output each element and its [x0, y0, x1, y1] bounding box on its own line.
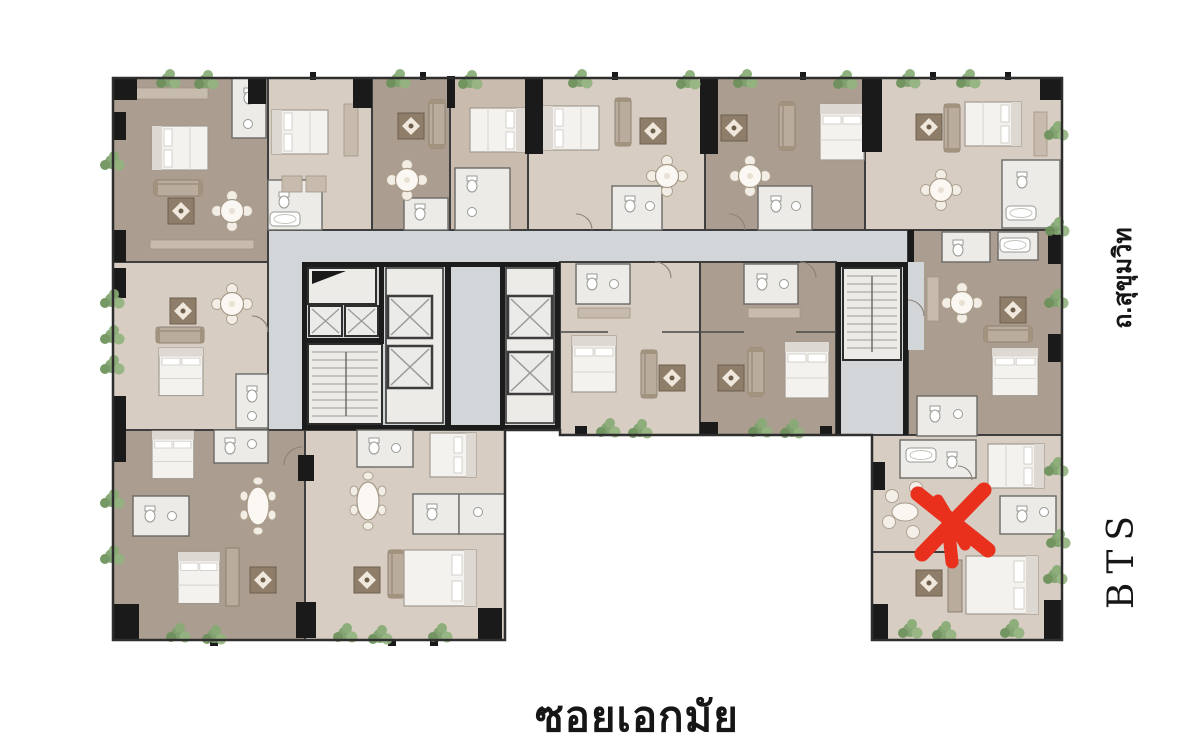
bench: [226, 548, 239, 606]
toilet-icon: [145, 506, 155, 522]
toilet-icon: [625, 196, 635, 212]
toilet-icon: [771, 196, 781, 212]
elevator-icon: [388, 296, 432, 338]
coffee-table-icon: [916, 114, 942, 140]
toilet-icon: [1017, 506, 1027, 522]
plant-icon: [833, 70, 858, 90]
sink-icon: [244, 120, 253, 129]
sink-icon: [610, 280, 619, 289]
bed-icon: [992, 348, 1038, 396]
bed-icon: [272, 110, 328, 154]
street-label-sukhumvit: ถ.สุขุมวิท: [1109, 178, 1137, 378]
bed-icon: [152, 431, 194, 479]
sofa-icon: [779, 102, 795, 150]
coffee-table-icon: [170, 298, 196, 324]
bed-icon: [159, 348, 203, 396]
bed-icon: [543, 106, 599, 150]
coffee-table-icon: [354, 567, 380, 593]
toilet-icon: [427, 504, 437, 520]
bed-icon: [966, 556, 1038, 614]
toilet-icon: [953, 240, 963, 256]
bed-icon: [785, 342, 829, 398]
coffee-table-icon: [168, 198, 194, 224]
bathtub-icon: [1006, 206, 1036, 220]
toilet-icon: [930, 406, 940, 422]
sofa-icon: [748, 348, 764, 396]
elevator-icon: [508, 296, 552, 338]
core-stairwell: [302, 262, 560, 430]
bed-icon: [965, 102, 1021, 146]
toilet-icon: [415, 204, 425, 220]
plant-icon: [676, 70, 701, 90]
toilet-icon: [279, 192, 289, 208]
toilet-icon: [247, 386, 257, 402]
sink-icon: [646, 202, 655, 211]
toilet-icon: [467, 176, 477, 192]
coffee-table-icon: [718, 365, 744, 391]
bed-icon: [430, 433, 476, 477]
stairs-icon: [308, 344, 382, 424]
sink-icon: [1040, 508, 1049, 517]
sink-icon: [392, 444, 401, 453]
sink-icon: [954, 410, 963, 419]
plant-icon: [194, 70, 219, 90]
bed-icon: [988, 444, 1044, 488]
wing-entry-hall: [908, 262, 924, 350]
stairs-icon: [843, 268, 901, 360]
sofa-icon: [156, 327, 204, 343]
bathtub-icon: [906, 448, 936, 462]
toilet-icon: [947, 452, 957, 468]
sofa-icon: [388, 550, 404, 598]
toilet-icon: [757, 274, 767, 290]
sink-icon: [792, 202, 801, 211]
elevator-icon: [345, 306, 378, 336]
coffee-table-icon: [1000, 297, 1026, 323]
sofa-icon: [984, 326, 1032, 342]
bed-icon: [820, 104, 864, 160]
sofa-icon: [944, 104, 960, 152]
toilet-icon: [369, 438, 379, 454]
bed-icon: [470, 108, 526, 152]
bed-icon: [152, 126, 208, 170]
sofa-icon: [615, 98, 631, 146]
bed-icon: [572, 336, 616, 392]
coffee-table-icon: [250, 567, 276, 593]
sink-icon: [248, 412, 257, 421]
sink-icon: [474, 508, 483, 517]
coffee-table-icon: [398, 113, 424, 139]
coffee-table-icon: [640, 118, 666, 144]
bed-icon: [404, 550, 476, 606]
sofa-icon: [154, 180, 202, 196]
coffee-table-icon: [721, 115, 747, 141]
sink-icon: [780, 280, 789, 289]
sink-icon: [168, 512, 177, 521]
sofa-icon: [641, 350, 657, 398]
sink-icon: [468, 208, 477, 217]
floor-plan: [0, 0, 1200, 750]
bed-icon: [178, 552, 220, 604]
elevator-icon: [508, 352, 552, 394]
street-label-soi-ekkamai: ซอยเอกมัย: [437, 684, 837, 750]
bathtub-icon: [270, 212, 300, 226]
coffee-table-icon: [916, 570, 942, 596]
sink-icon: [248, 440, 257, 449]
toilet-icon: [1017, 172, 1027, 188]
bathtub-icon: [1000, 238, 1030, 252]
toilet-icon: [225, 438, 235, 454]
bts-transit-label: BTS: [1102, 458, 1142, 658]
plant-icon: [458, 70, 483, 90]
floorplan-page: ซอยเอกมัย ถ.สุขุมวิท BTS: [0, 0, 1200, 750]
coffee-table-icon: [659, 365, 685, 391]
toilet-icon: [587, 274, 597, 290]
sofa-icon: [429, 100, 445, 148]
elevator-icon: [388, 346, 432, 388]
dining-table-icon: [892, 503, 918, 521]
elevator-icon: [309, 306, 342, 336]
